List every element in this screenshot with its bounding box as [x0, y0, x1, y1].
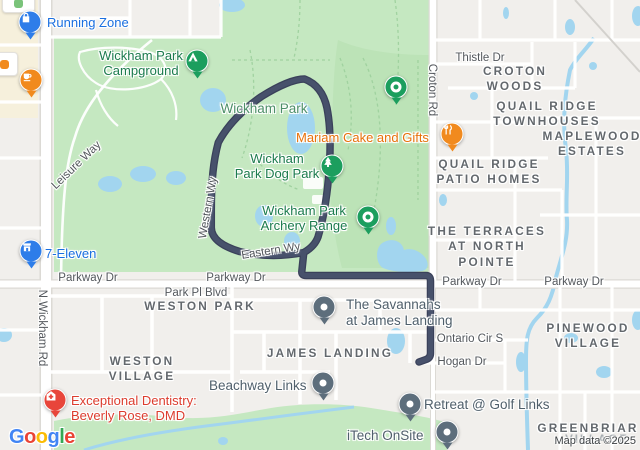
label-wickham-park-archery-range[interactable]: Wickham Park Archery Range — [261, 203, 348, 234]
pin-dog-park[interactable] — [321, 155, 344, 178]
label-beachway-links[interactable]: Beachway Links — [209, 378, 307, 394]
label-pinewood-village: PINEWOOD VILLAGE — [546, 321, 629, 352]
label-quail-ridge-patio-homes: QUAIL RIDGE PATIO HOMES — [436, 157, 541, 188]
label-weston-park: WESTON PARK — [144, 299, 256, 314]
pin-retreat-golf-links[interactable] — [399, 393, 422, 416]
label-thistle-dr: Thistle Dr — [455, 52, 504, 66]
label-quail-ridge-townhouses: QUAIL RIDGE TOWNHOUSES — [493, 99, 601, 130]
pin-dentistry[interactable] — [44, 389, 67, 412]
pin-beachway-links[interactable] — [312, 372, 335, 395]
label-parkway-dr-c: Parkway Dr — [206, 272, 265, 286]
donut-icon — [363, 212, 374, 223]
label-itech-onsite[interactable]: iTech OnSite — [347, 428, 424, 444]
dot-icon — [320, 303, 328, 311]
label-wickham-park-dog-park[interactable]: Wickham Park Dog Park — [235, 151, 320, 182]
pin-itech-onsite[interactable] — [436, 421, 459, 444]
google-logo-letter: o — [36, 426, 48, 448]
label-wickham-park: Wickham Park — [220, 101, 307, 117]
google-logo[interactable]: Google — [9, 426, 75, 449]
pin-archery-range[interactable] — [357, 206, 380, 229]
pin-seven-eleven[interactable] — [20, 240, 43, 263]
map-data-attribution: Map data ©2025 — [555, 435, 637, 447]
pin-mariam-cake[interactable] — [441, 123, 464, 146]
google-logo-letter: o — [24, 426, 36, 448]
poi-glyph-icon — [0, 60, 9, 69]
pin-the-savannahs[interactable] — [313, 296, 336, 319]
google-logo-letter: e — [64, 426, 75, 448]
label-n-wickham-rd: N Wickham Rd — [34, 290, 48, 367]
dot-icon — [443, 428, 451, 436]
label-the-terraces-at-north-pointe: THE TERRACES AT NORTH POINTE — [428, 224, 546, 270]
poi-glyph-icon — [14, 0, 23, 8]
label-weston-village: WESTON VILLAGE — [109, 354, 176, 385]
pin-running-zone[interactable] — [19, 11, 42, 34]
label-parkway-dr-e2: Parkway Dr — [544, 276, 603, 290]
pin-campground[interactable] — [186, 50, 209, 73]
label-retreat-at-golf-links[interactable]: Retreat @ Golf Links — [424, 397, 550, 413]
label-running-zone[interactable]: Running Zone — [47, 15, 129, 30]
label-parkway-dr-e1: Parkway Dr — [442, 276, 501, 290]
label-park-pl-blvd: Park Pl Blvd — [165, 287, 228, 301]
label-maplewood-estates: MAPLEWOOD ESTATES — [542, 129, 640, 160]
label-james-landing: JAMES LANDING — [267, 346, 393, 361]
label-croton-rd: Croton Rd — [424, 64, 438, 116]
edge-poi-left[interactable] — [0, 52, 18, 76]
label-parkway-dr-w: Parkway Dr — [58, 272, 117, 286]
label-mariam-cake-and-gifts[interactable]: Mariam Cake and Gifts — [296, 130, 429, 145]
label-the-savannahs[interactable]: The Savannahs at James Landing — [346, 297, 453, 329]
label-wickham-park-campground[interactable]: Wickham Park Campground — [99, 48, 183, 79]
pin-park-poi[interactable] — [385, 76, 408, 99]
dot-icon — [406, 400, 414, 408]
dot-icon — [319, 379, 327, 387]
label-croton-woods: CROTON WOODS — [453, 64, 578, 95]
pin-coffee-shop[interactable] — [20, 69, 43, 92]
label-hogan-dr: Hogan Dr — [437, 356, 486, 370]
google-logo-letter: G — [9, 426, 24, 448]
label-exceptional-dentistry[interactable]: Exceptional Dentistry: Beverly Rose, DMD — [71, 393, 197, 424]
label-ontario-cir-s: Ontario Cir S — [437, 333, 503, 347]
label-seven-eleven[interactable]: 7-Eleven — [45, 246, 96, 261]
google-logo-letter: g — [48, 426, 60, 448]
map-viewport[interactable]: Running ZoneWickham Park CampgroundWickh… — [0, 0, 640, 450]
donut-icon — [391, 82, 402, 93]
